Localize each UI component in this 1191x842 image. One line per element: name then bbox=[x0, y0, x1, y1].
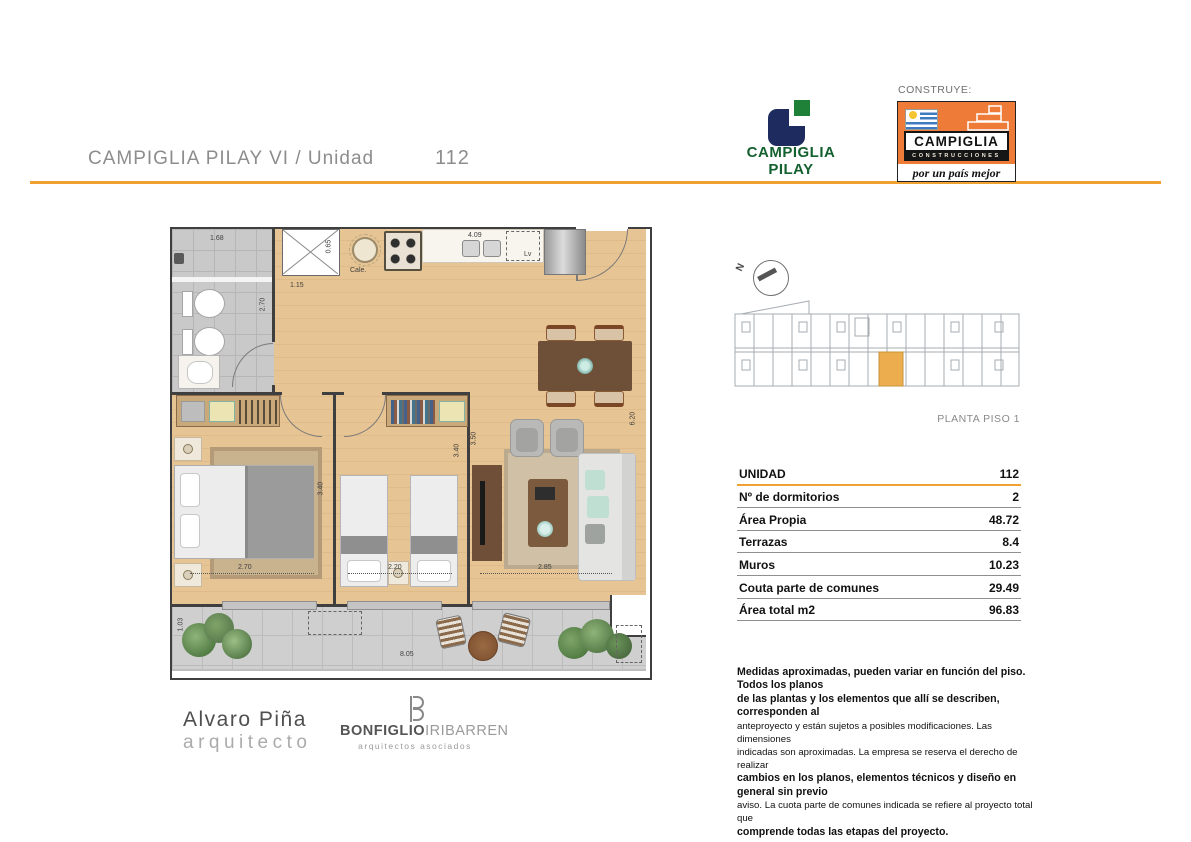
highlighted-unit bbox=[879, 352, 903, 386]
dim-label: 6.20 bbox=[629, 412, 636, 426]
north-label: N bbox=[734, 262, 747, 273]
dining-chair bbox=[546, 391, 576, 407]
toilet-bowl bbox=[194, 289, 225, 318]
pillow-mint bbox=[585, 470, 605, 490]
wall bbox=[317, 604, 347, 607]
construcciones-tagline: por un país mejor bbox=[898, 164, 1015, 182]
dining-chair bbox=[594, 391, 624, 407]
table-row: Área total m2 96.83 bbox=[737, 599, 1021, 622]
bonfiglio-logo-icon bbox=[403, 695, 427, 723]
plant bbox=[182, 613, 256, 665]
dim-label: 1.03 bbox=[177, 618, 184, 632]
fridge-icon bbox=[544, 229, 586, 275]
armchair bbox=[550, 419, 584, 457]
dim-label: 3.40 bbox=[317, 482, 324, 496]
table-row: Terrazas 8.4 bbox=[737, 531, 1021, 554]
dining-chair bbox=[546, 325, 576, 341]
wall bbox=[333, 392, 336, 607]
dim-line bbox=[348, 573, 452, 574]
bidet-bowl bbox=[194, 327, 225, 356]
floor-plan: Cale. 4.09 Lv bbox=[170, 227, 652, 680]
wall bbox=[172, 604, 222, 607]
tv-icon bbox=[480, 481, 485, 545]
table-row: Nº de dormitorios 2 bbox=[737, 486, 1021, 509]
terrace-rail bbox=[172, 669, 646, 671]
double-bed bbox=[174, 465, 314, 559]
shower-screen bbox=[172, 277, 272, 282]
unit-spec-table: UNIDAD 112 Nº de dormitorios 2 Área Prop… bbox=[737, 463, 1021, 621]
pillow bbox=[180, 473, 200, 507]
dashed-box bbox=[616, 625, 642, 663]
dim-label: 2.70 bbox=[238, 564, 252, 571]
wardrobe bbox=[176, 395, 280, 427]
table-row: Couta parte de comunes 29.49 bbox=[737, 576, 1021, 599]
pillow bbox=[417, 560, 451, 582]
window bbox=[472, 601, 610, 610]
dashed-box bbox=[308, 611, 362, 635]
campiglia-pilay-wordmark: CAMPIGLIA PILAY bbox=[735, 144, 847, 178]
toilet-icon bbox=[182, 291, 193, 317]
nightstand bbox=[174, 437, 202, 461]
dim-label: 2.85 bbox=[538, 564, 552, 571]
wall bbox=[442, 604, 472, 607]
shower-head-icon bbox=[174, 253, 184, 264]
lamp-icon bbox=[183, 570, 193, 580]
sofa bbox=[578, 453, 636, 581]
uruguay-flag-icon bbox=[905, 109, 938, 130]
dim-label: 1.15 bbox=[290, 282, 304, 289]
wall bbox=[272, 229, 275, 342]
window bbox=[347, 601, 442, 610]
water-heater-icon bbox=[352, 237, 378, 263]
campiglia-pilay-logo-icon bbox=[766, 100, 816, 146]
building-key-plan bbox=[733, 296, 1025, 396]
construye-label: CONSTRUYE: bbox=[898, 84, 972, 96]
dining-table bbox=[538, 341, 632, 391]
pillow-mint bbox=[587, 496, 609, 518]
nightstand bbox=[174, 563, 202, 587]
dim-line bbox=[480, 573, 612, 574]
unit-number: 112 bbox=[435, 147, 470, 170]
stove-icon bbox=[384, 231, 422, 271]
laundry-label: Lv bbox=[524, 251, 531, 258]
dim-label: 1.68 bbox=[210, 235, 224, 242]
dim-line bbox=[190, 573, 314, 574]
table-row: UNIDAD 112 bbox=[737, 463, 1021, 486]
table-row: Área Propia 48.72 bbox=[737, 508, 1021, 531]
single-bed bbox=[410, 475, 458, 587]
pillow bbox=[180, 514, 200, 548]
table-row: Muros 10.23 bbox=[737, 553, 1021, 576]
dining-chair bbox=[594, 325, 624, 341]
disclaimer-text: Medidas aproximadas, pueden variar en fu… bbox=[737, 666, 1047, 839]
dim-label: 3.40 bbox=[453, 444, 460, 458]
pillow bbox=[347, 560, 381, 582]
dim-label: 8.05 bbox=[400, 651, 414, 658]
laundry-box bbox=[506, 231, 540, 261]
architect-role: arquitecto bbox=[183, 732, 311, 754]
architect-name: Alvaro Piña bbox=[183, 708, 307, 732]
dim-label: 2.70 bbox=[259, 298, 266, 312]
dim-label: 3.50 bbox=[470, 432, 477, 446]
construcciones-subtitle: CONSTRUCCIONES bbox=[904, 152, 1009, 161]
page-title: CAMPIGLIA PILAY VI / Unidad bbox=[88, 148, 374, 170]
window bbox=[222, 601, 317, 610]
lamp-icon bbox=[183, 444, 193, 454]
heater-label: Cale. bbox=[350, 267, 366, 274]
kitchen-sink-icon bbox=[460, 237, 504, 261]
single-bed bbox=[340, 475, 388, 587]
bathroom-sink-icon bbox=[178, 355, 220, 389]
dim-label: 2.20 bbox=[388, 564, 402, 571]
wardrobe bbox=[386, 395, 468, 427]
blanket bbox=[245, 466, 314, 558]
table-plant bbox=[577, 358, 593, 374]
terrace-table bbox=[468, 631, 498, 661]
keyplan-caption: PLANTA PISO 1 bbox=[870, 413, 1020, 425]
building-blocks-icon bbox=[967, 105, 1009, 131]
armchair bbox=[510, 419, 544, 457]
construcciones-name: CAMPIGLIA bbox=[904, 131, 1009, 152]
tv-stand bbox=[472, 465, 502, 561]
campiglia-construcciones-logo: CAMPIGLIA CONSTRUCCIONES por un país mej… bbox=[897, 101, 1016, 182]
coffee-table bbox=[528, 479, 568, 547]
dim-label: 0.65 bbox=[325, 240, 332, 254]
pillow-gray bbox=[585, 524, 605, 544]
bidet-icon bbox=[182, 329, 193, 355]
